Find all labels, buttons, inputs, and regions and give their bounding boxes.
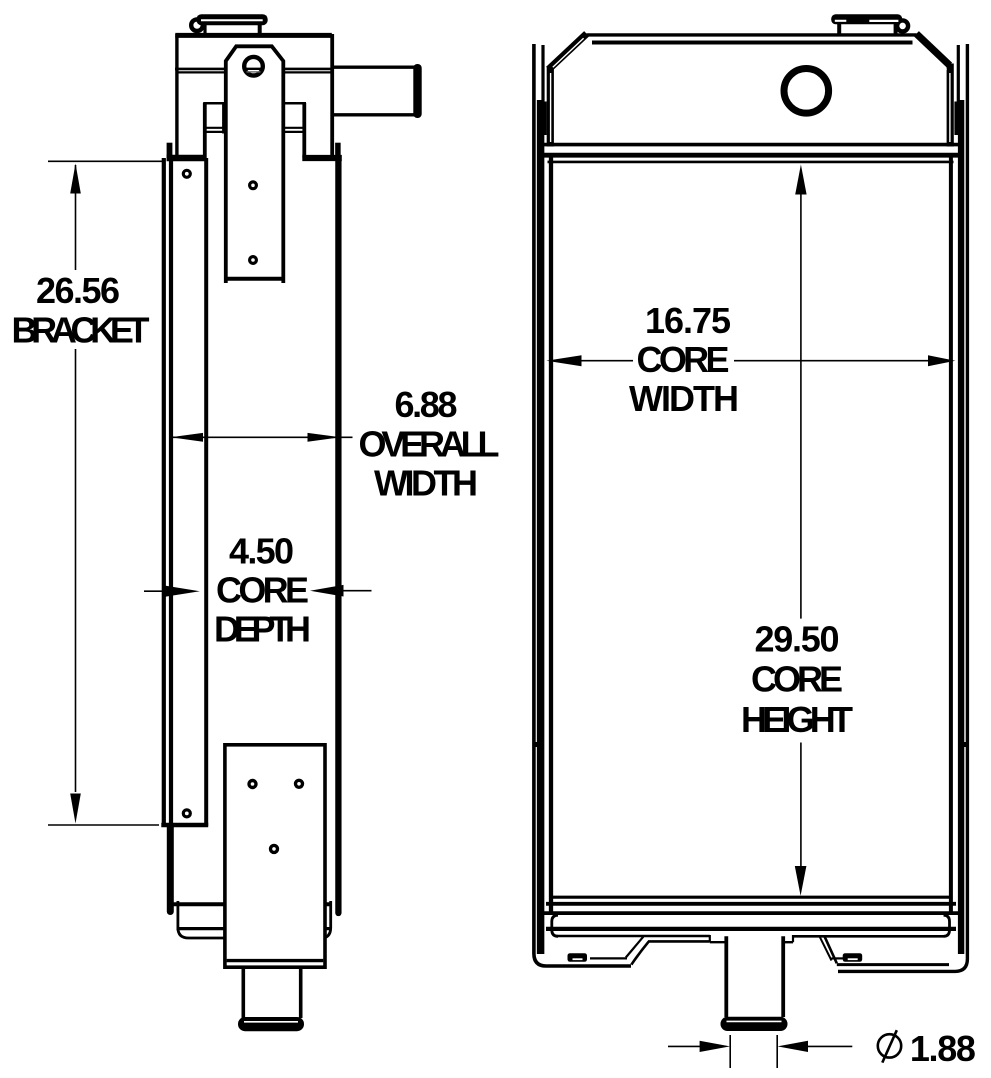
svg-text:HEIGHT: HEIGHT <box>741 699 853 740</box>
svg-text:WIDTH: WIDTH <box>374 463 478 504</box>
svg-text:DEPTH: DEPTH <box>214 609 311 650</box>
svg-text:16.75: 16.75 <box>645 300 731 341</box>
svg-text:4.50: 4.50 <box>229 531 294 572</box>
svg-text:6.88: 6.88 <box>395 384 458 425</box>
svg-text:BRACKET: BRACKET <box>12 310 150 351</box>
svg-text:OVERALL: OVERALL <box>359 424 500 465</box>
svg-text:26.56: 26.56 <box>36 270 120 311</box>
svg-text:CORE: CORE <box>751 659 843 700</box>
svg-text:WIDTH: WIDTH <box>629 378 739 419</box>
svg-text:CORE: CORE <box>216 570 309 611</box>
svg-text:1.88: 1.88 <box>910 1028 976 1069</box>
svg-text:29.50: 29.50 <box>755 619 840 660</box>
svg-text:CORE: CORE <box>637 339 730 380</box>
